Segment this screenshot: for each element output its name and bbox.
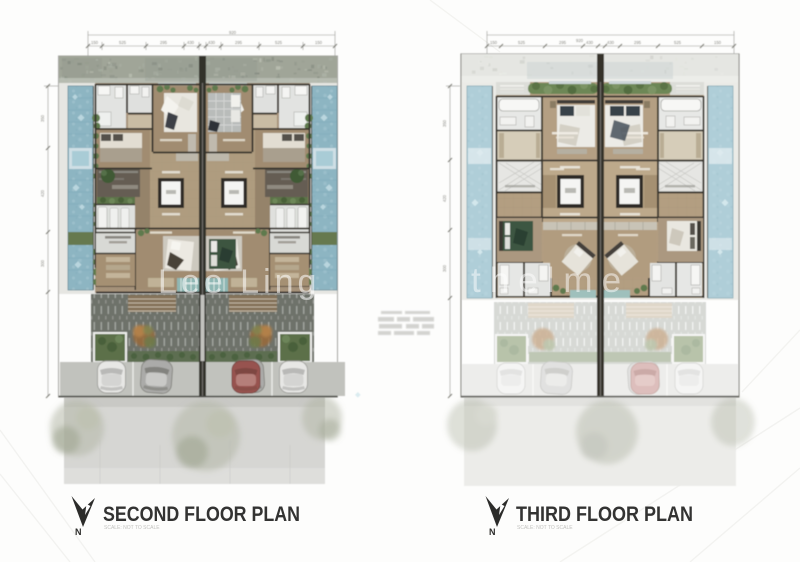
svg-text:300: 300 (40, 259, 45, 267)
svg-text:350: 350 (40, 114, 45, 122)
svg-text:295: 295 (634, 40, 642, 45)
svg-text:525: 525 (674, 40, 682, 45)
svg-text:thelme: thelme (471, 261, 630, 300)
svg-text:THIRD FLOOR PLAN: THIRD FLOOR PLAN (516, 503, 693, 526)
svg-text:SECOND FLOOR PLAN: SECOND FLOOR PLAN (103, 503, 300, 526)
svg-text:150: 150 (315, 40, 323, 45)
svg-text:525: 525 (119, 40, 127, 45)
svg-text:300: 300 (442, 264, 447, 272)
svg-text:150: 150 (490, 40, 498, 45)
svg-text:295: 295 (160, 40, 168, 45)
svg-text:150: 150 (91, 40, 99, 45)
svg-text:420: 420 (40, 189, 45, 197)
svg-text:Lee Ling: Lee Ling (158, 263, 320, 301)
svg-text:150: 150 (714, 40, 722, 45)
svg-text:295: 295 (559, 40, 567, 45)
svg-text:420: 420 (442, 194, 447, 202)
svg-text:525: 525 (275, 40, 283, 45)
svg-text:525: 525 (518, 40, 526, 45)
svg-text:SCALE: NOT TO SCALE: SCALE: NOT TO SCALE (104, 525, 160, 531)
svg-text:SCALE: NOT TO SCALE: SCALE: NOT TO SCALE (517, 525, 573, 531)
svg-text:430: 430 (208, 40, 216, 45)
svg-text:N: N (75, 527, 82, 537)
svg-text:920: 920 (576, 38, 584, 43)
svg-text:920: 920 (229, 30, 237, 35)
svg-text:430: 430 (187, 40, 195, 45)
svg-text:430: 430 (586, 40, 594, 45)
svg-text:295: 295 (235, 40, 243, 45)
svg-text:N: N (489, 527, 496, 537)
svg-text:430: 430 (607, 40, 615, 45)
svg-text:350: 350 (442, 119, 447, 127)
